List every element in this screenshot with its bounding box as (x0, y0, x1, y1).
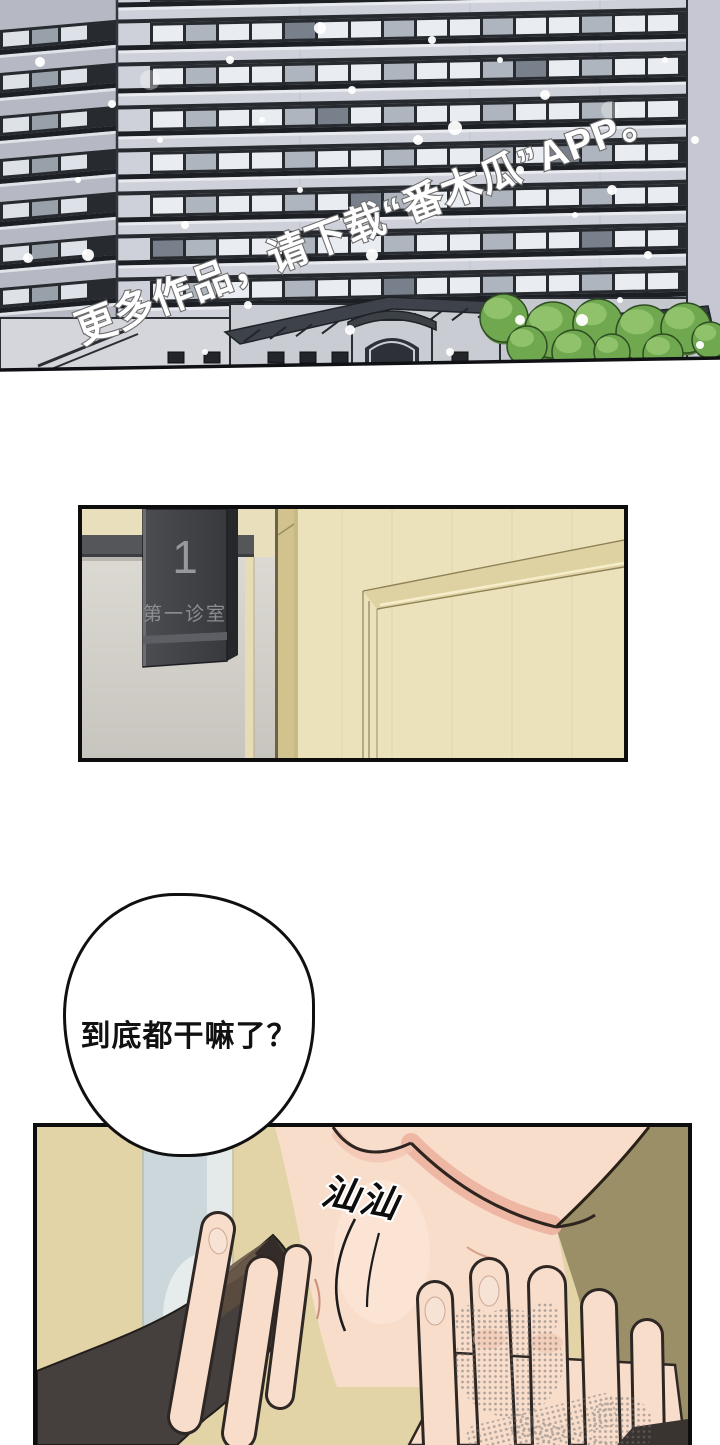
speech-bubble-text: 到底都干嘛了？ (81, 1011, 298, 1055)
sign-label-text: 第一诊室 (143, 603, 227, 625)
sign-number-text: 1 (172, 531, 198, 583)
panel-closeup: 汕汕 (33, 1123, 692, 1445)
closeup-illustration: 汕汕 (37, 1127, 688, 1445)
building-illustration: 更多作品，请下载“番木瓜”APP。 (0, 0, 720, 372)
door-sign: 1 第一诊室 (143, 509, 238, 667)
fingernail (479, 1276, 499, 1306)
door-edge-shade (294, 509, 298, 758)
sign-fold (227, 509, 238, 661)
door-gap-line (275, 509, 278, 758)
door-face (294, 509, 624, 758)
fingernail (425, 1297, 445, 1325)
panel-building: 更多作品，请下载“番木瓜”APP。 (0, 0, 720, 372)
speech-bubble: 到底都干嘛了？ (63, 893, 315, 1157)
panel-door: 1 第一诊室 (78, 505, 628, 762)
door-illustration: 1 第一诊室 (82, 509, 624, 758)
wall-corner-strip (245, 557, 254, 758)
door-jamb (278, 509, 294, 758)
